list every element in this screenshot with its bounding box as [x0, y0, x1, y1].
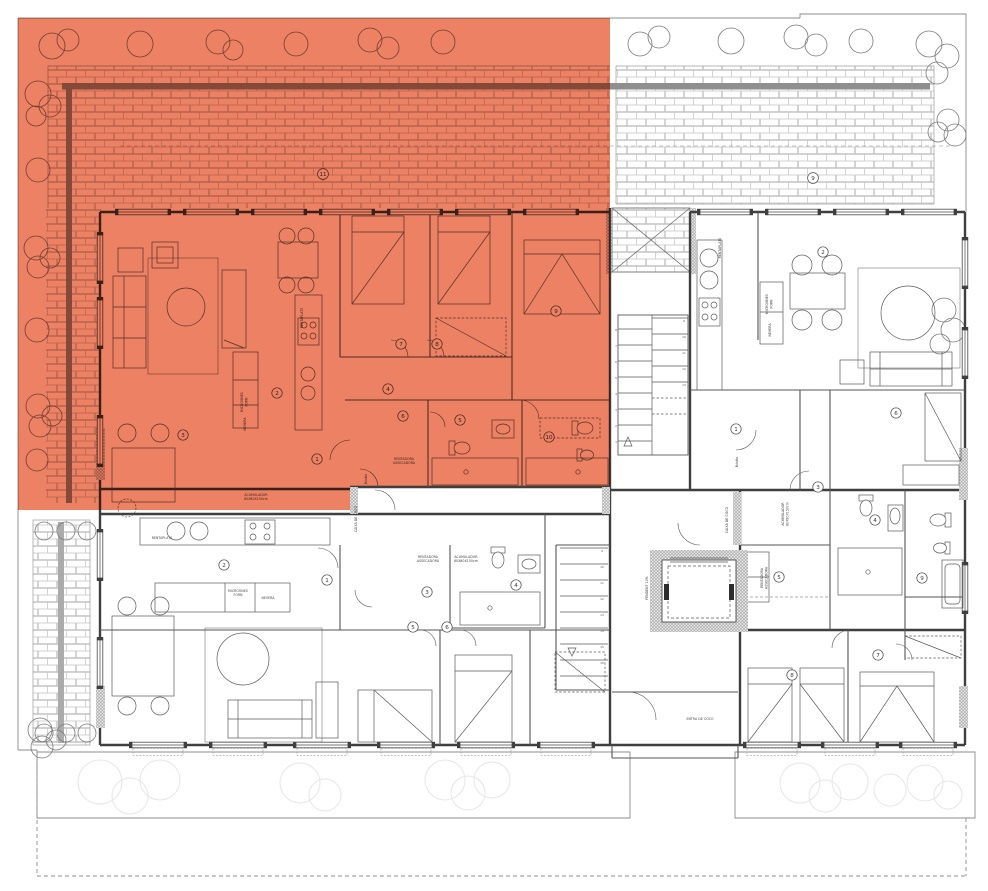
room-marker: 7	[873, 650, 883, 660]
svg-text:5: 5	[411, 625, 415, 631]
room-marker: 6	[891, 408, 901, 418]
label-assecadora-br: ASSECADORA	[765, 566, 769, 589]
label-entrada-coco: ENTRA DE COCO	[686, 717, 714, 721]
svg-text:3: 3	[816, 485, 820, 491]
label-rentaplats-tr: RENTAPLATS	[718, 238, 722, 259]
label-pendent: PENDENT 10%	[645, 576, 649, 600]
room-marker: 4	[870, 515, 880, 525]
label-rentadora-br: RENTADORA	[760, 567, 764, 588]
room-marker: 3	[422, 587, 432, 597]
svg-text:13: 13	[682, 383, 686, 387]
label-assecadora-bl: ASSECADORA	[417, 559, 440, 563]
unit-bottom-right	[740, 495, 963, 742]
svg-text:2: 2	[222, 563, 226, 569]
svg-text:11: 11	[682, 351, 686, 355]
room-marker: 4	[511, 580, 521, 590]
svg-text:5: 5	[777, 575, 781, 581]
svg-text:1: 1	[615, 440, 617, 444]
label-rentaplats-bl: RENTAPLATS	[152, 536, 173, 540]
room-marker: 2	[219, 560, 229, 570]
label-nevera-bl: NEVERA	[261, 596, 275, 600]
svg-text:12: 12	[682, 367, 686, 371]
label-acumulador-mida-bl: 80X80X150cm	[454, 559, 478, 563]
elevator	[650, 550, 748, 632]
svg-text:6: 6	[894, 411, 898, 417]
floor-plan-canvas: 11 9 1 2 3 4 5 6 7 8 9 10 1 2 3 6 1 2 3 …	[0, 0, 988, 891]
svg-text:6: 6	[615, 360, 617, 364]
skylight-square	[606, 208, 696, 274]
label-forn-tr: FORN	[770, 299, 774, 309]
label-microones-tr: MICROONES	[765, 294, 769, 314]
garden-trees-faint	[78, 760, 962, 814]
svg-text:9: 9	[920, 576, 924, 582]
svg-text:11: 11	[600, 581, 604, 585]
svg-text:2: 2	[615, 424, 617, 428]
label-forn-bl: FORN	[233, 593, 243, 597]
svg-text:4: 4	[615, 392, 617, 396]
svg-text:10: 10	[600, 565, 604, 569]
svg-text:10: 10	[682, 335, 686, 339]
label-acumulador-br: ACUMULADOR	[781, 502, 785, 526]
svg-text:6: 6	[445, 625, 449, 631]
label-acumulador-mida-br: 80X80X150cm	[786, 502, 790, 526]
room-marker: 8	[787, 670, 797, 680]
room-marker: 5	[774, 572, 784, 582]
room-marker: 2	[818, 247, 828, 257]
svg-text:4: 4	[873, 518, 877, 524]
svg-text:9: 9	[811, 176, 815, 182]
room-marker: 5	[408, 622, 418, 632]
floor-plan-drawing: 11 9 1 2 3 4 5 6 7 8 9 10 1 2 3 6 1 2 3 …	[0, 0, 988, 891]
svg-text:15: 15	[600, 645, 604, 649]
room-marker: 9	[808, 173, 819, 184]
label-caixa-coco-right: CAIXA DE COCO	[725, 506, 729, 533]
svg-text:7: 7	[876, 653, 880, 659]
svg-text:7: 7	[615, 344, 617, 348]
svg-text:4: 4	[514, 583, 518, 589]
svg-text:14: 14	[600, 629, 604, 633]
svg-text:16: 16	[600, 661, 604, 665]
svg-text:9: 9	[601, 549, 603, 553]
highlight-overlay	[18, 18, 610, 510]
svg-text:13: 13	[600, 613, 604, 617]
label-nevera-tr: NEVERA	[768, 323, 772, 337]
label-caixa-coco-left: CAIXA DE COCO	[354, 505, 358, 532]
room-marker: 9	[917, 573, 927, 583]
room-marker: 1	[731, 424, 741, 434]
svg-text:2: 2	[821, 250, 825, 256]
svg-text:12: 12	[600, 597, 604, 601]
svg-text:9: 9	[683, 319, 685, 323]
stair-core-a	[618, 315, 688, 455]
svg-text:3: 3	[615, 408, 617, 412]
svg-text:8: 8	[615, 328, 617, 332]
label-bustia-right: Bústia	[735, 457, 739, 467]
svg-text:3: 3	[425, 590, 429, 596]
room-marker: 6	[442, 622, 452, 632]
svg-text:5: 5	[615, 376, 617, 380]
svg-text:1: 1	[734, 427, 738, 433]
svg-text:1: 1	[325, 578, 329, 584]
room-marker: 3	[813, 482, 823, 492]
unit-top-right	[690, 240, 961, 490]
lower-band	[58, 522, 64, 743]
svg-text:8: 8	[790, 673, 794, 679]
room-marker: 1	[322, 575, 332, 585]
